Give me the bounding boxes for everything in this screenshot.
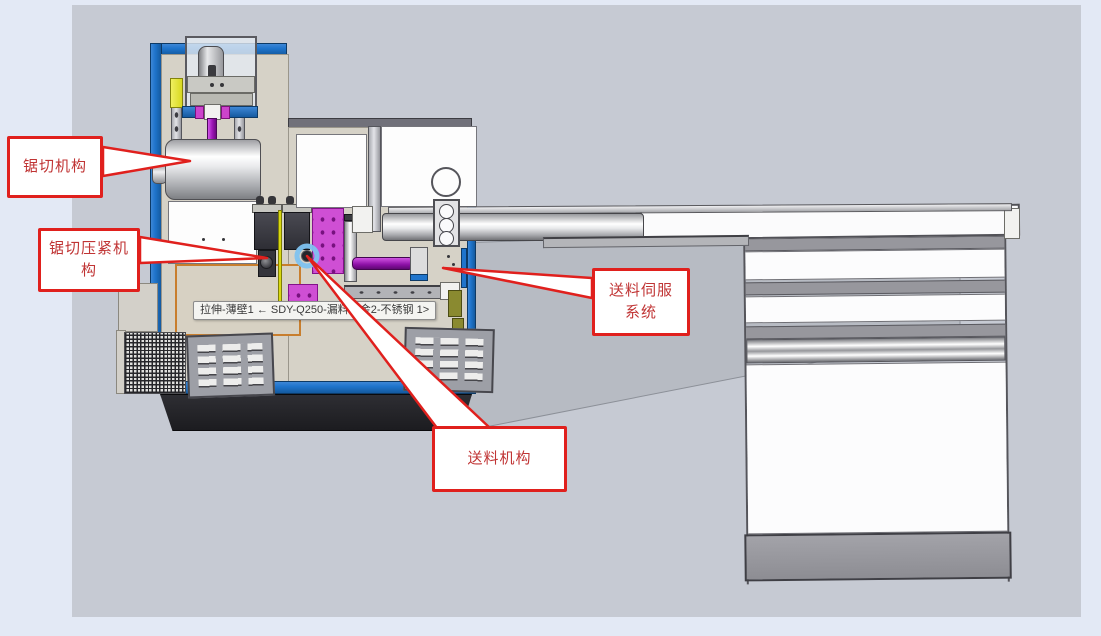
magenta-cap-left — [195, 106, 204, 119]
motor-mount-plate — [187, 76, 255, 93]
bolt-dot — [220, 83, 224, 87]
vent-panel-left[interactable] — [186, 333, 275, 399]
guard-panel-right[interactable] — [381, 126, 477, 207]
panel-porthole — [431, 167, 461, 197]
callout-label: 送料机构 — [467, 448, 531, 470]
callout-saw-clamp-mechanism: 锯切压紧机构 — [38, 228, 140, 292]
feature-tooltip: 拉伸-薄壁1 ← SDY-Q250-漏料板金2-不锈钢 1> — [193, 301, 436, 320]
feed-lower-rail — [543, 235, 749, 248]
cad-screenshot-page: 拉伸-薄壁1 ← SDY-Q250-漏料板金2-不锈钢 1> 锯切机构 锯切压紧… — [0, 0, 1101, 636]
clamp-block-left[interactable] — [254, 212, 280, 250]
bolt-dot — [452, 263, 455, 266]
bolt-dot — [210, 83, 214, 87]
feed-screw-rod[interactable] — [352, 257, 414, 270]
bolt-dot — [222, 238, 225, 241]
callout-label: 锯切机构 — [23, 156, 87, 178]
callout-label: 送料伺服系统 — [603, 280, 679, 324]
callout-feed-servo-system: 送料伺服系统 — [592, 268, 690, 336]
callout-saw-mechanism: 锯切机构 — [7, 136, 103, 198]
feed-support-stand[interactable] — [743, 236, 1010, 585]
vent-panel-right[interactable] — [403, 327, 495, 393]
feed-beam-end-cap — [1004, 208, 1020, 239]
olive-spacer — [448, 290, 462, 317]
saw-motor-cylinder[interactable] — [165, 139, 261, 200]
stand-roller-bars — [746, 337, 1005, 364]
magenta-cap-right — [221, 106, 230, 119]
stand-front-panel — [747, 362, 1008, 535]
clamp-block-right[interactable] — [284, 212, 310, 250]
rod-end-bracket — [410, 247, 428, 277]
stand-band — [746, 294, 1005, 324]
clamp-roller — [260, 256, 273, 269]
saw-housing-panel[interactable] — [168, 201, 257, 264]
bracket-ring — [439, 231, 454, 246]
feed-clamp-plate[interactable] — [312, 208, 344, 274]
yellow-mount-left — [170, 78, 183, 108]
lower-mount-plate — [190, 93, 253, 106]
mesh-filter-panel[interactable] — [124, 332, 186, 394]
frame-post — [461, 248, 467, 288]
machine-base — [160, 394, 472, 431]
guard-panel-left[interactable] — [296, 134, 367, 208]
callout-feed-mechanism: 送料机构 — [432, 426, 567, 492]
gantry-riser — [352, 206, 373, 233]
rod-end-mount — [410, 274, 428, 281]
stand-band — [746, 280, 1005, 296]
selected-sheet-metal-panel[interactable] — [175, 264, 301, 336]
blade-strip — [278, 210, 282, 308]
stand-base — [744, 532, 1011, 582]
stand-band — [745, 249, 1004, 281]
bracket-ring — [439, 204, 454, 219]
callout-label: 锯切压紧机构 — [49, 238, 129, 282]
bolt-dot — [202, 238, 205, 241]
bolt-dot — [447, 255, 450, 258]
tube-clamp-bracket[interactable] — [433, 199, 460, 247]
